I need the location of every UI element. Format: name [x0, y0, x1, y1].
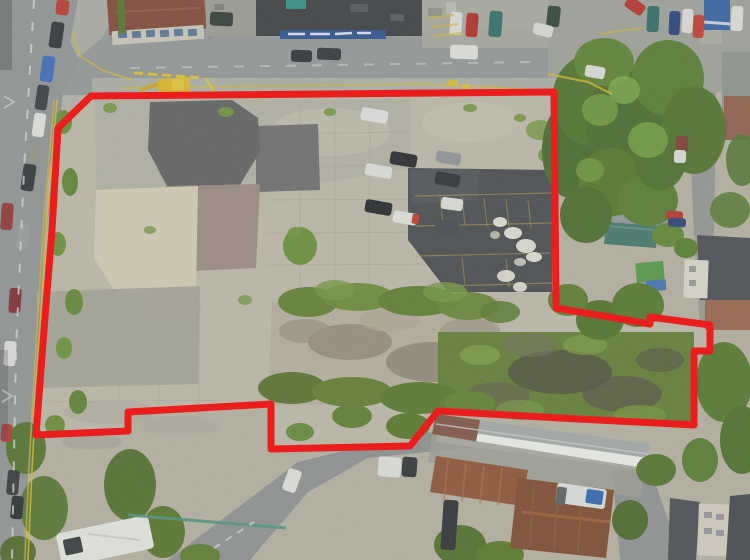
- aerial-site-photo: [0, 0, 750, 560]
- screenshot-root: [0, 0, 750, 560]
- photo-grain-overlay: [0, 0, 750, 560]
